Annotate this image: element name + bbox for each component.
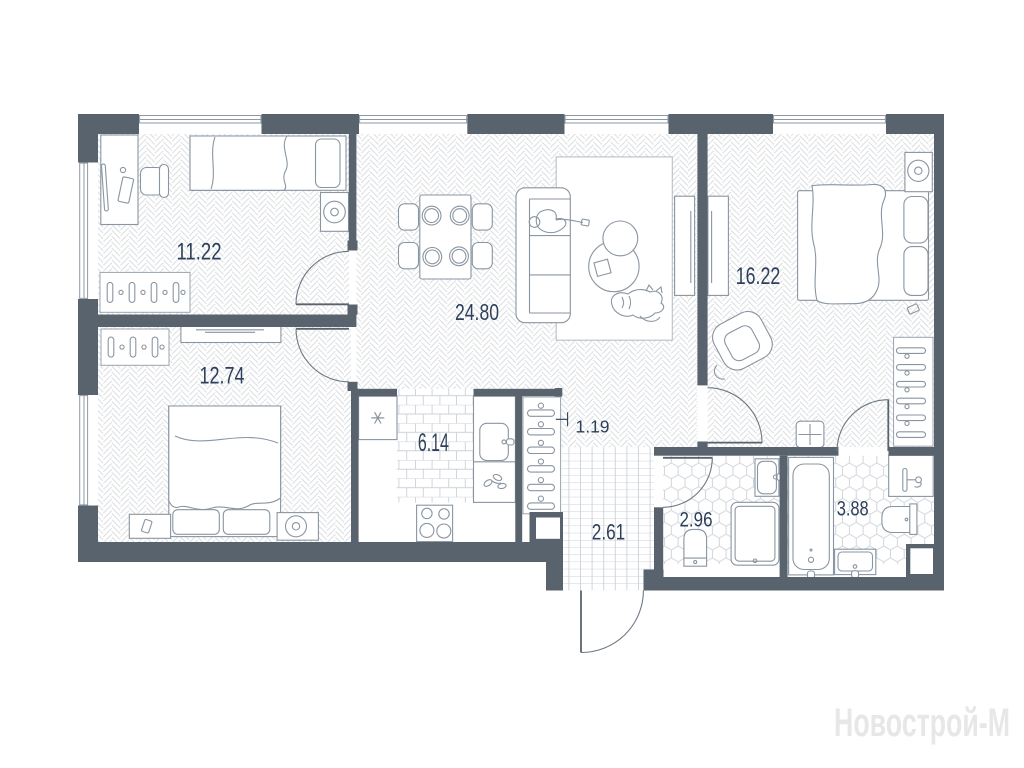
svg-text:16.22: 16.22	[736, 263, 781, 290]
svg-text:12.74: 12.74	[200, 363, 245, 390]
svg-text:1.19: 1.19	[575, 417, 609, 437]
svg-text:2.96: 2.96	[680, 509, 713, 532]
svg-text:6.14: 6.14	[418, 429, 449, 457]
svg-text:11.22: 11.22	[177, 239, 222, 266]
svg-text:Новострой-М: Новострой-М	[834, 701, 1010, 745]
svg-text:3.88: 3.88	[837, 498, 869, 521]
svg-text:24.80: 24.80	[455, 299, 499, 325]
svg-text:2.61: 2.61	[592, 520, 626, 545]
